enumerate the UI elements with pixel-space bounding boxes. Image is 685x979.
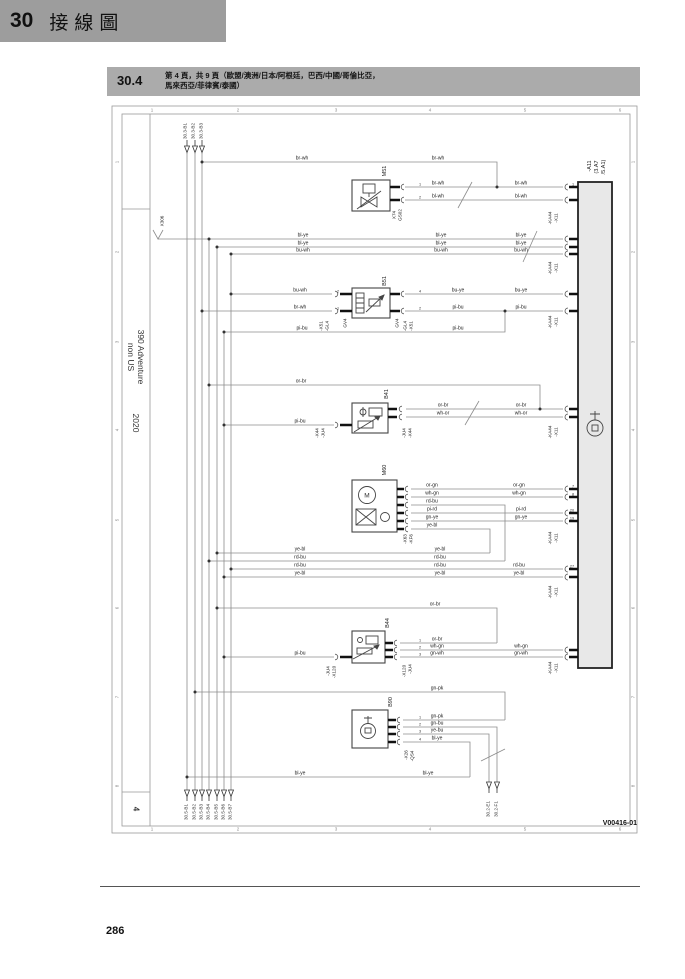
component-box-b90: [352, 710, 388, 748]
sidebar-sheet-number: 4: [132, 807, 141, 811]
manual-page: 30 接線圖 30.4 第 4 頁，共 9 頁（歐盟/澳洲/日本/阿根廷，巴西/…: [0, 0, 685, 979]
sidebar-model-line2: non US: [126, 343, 136, 371]
sidebar-model-label: 390 Adventure non US: [126, 330, 146, 385]
page-number: 286: [106, 925, 124, 937]
wiring-diagram-canvas: [0, 0, 685, 979]
component-box-m51: [352, 180, 390, 211]
sidebar-year-label: 2020: [131, 414, 141, 433]
component-box-b41: [352, 403, 388, 433]
component-boxes: [352, 180, 397, 748]
junction-dots: [186, 161, 542, 779]
ground-splice-symbol: [153, 230, 163, 239]
figure-id: V00416-01: [540, 820, 637, 827]
sidebar-model-line1: 390 Adventure: [136, 330, 146, 385]
footer-divider: [100, 886, 640, 887]
wires: [158, 153, 563, 790]
